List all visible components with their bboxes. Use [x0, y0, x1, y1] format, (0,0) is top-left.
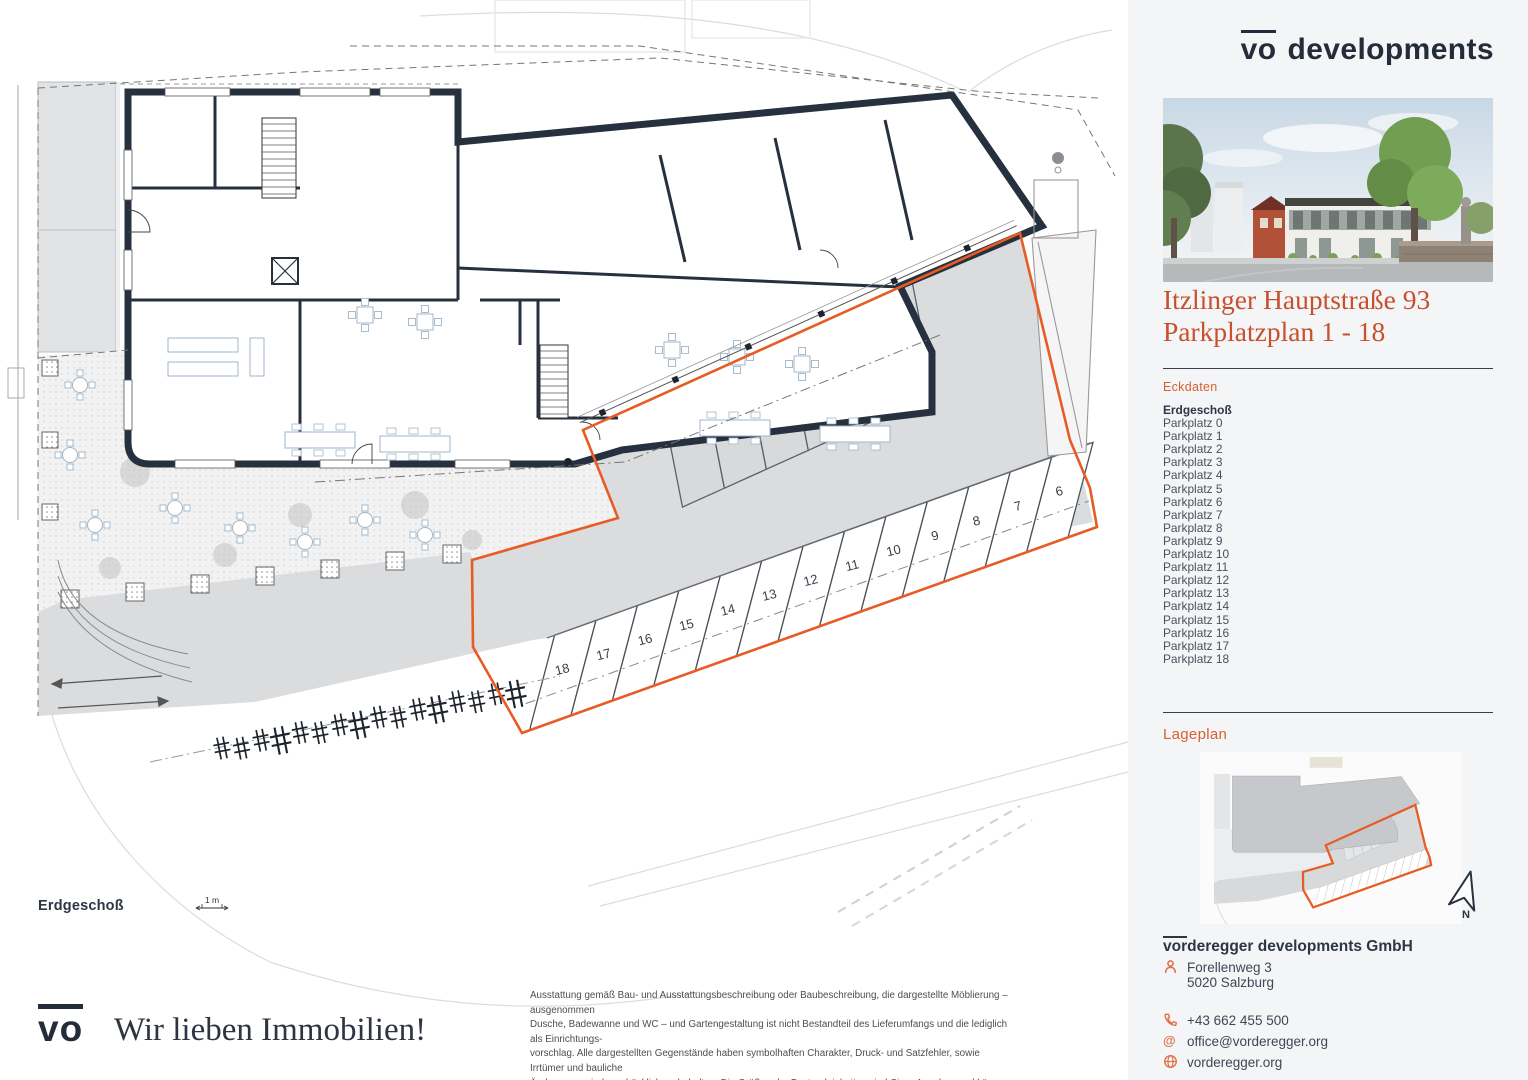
plan-scale-label: 1 m [205, 895, 219, 905]
parking-list-item: Parkplatz 8 [1163, 522, 1232, 535]
eckdaten-heading: Eckdaten [1163, 380, 1218, 394]
brand-tagline: Wir lieben Immobilien! [114, 1012, 426, 1049]
lageplan-heading: Lageplan [1163, 726, 1227, 743]
lageplan-minimap [1200, 752, 1462, 924]
parking-list-item: Parkplatz 17 [1163, 640, 1232, 653]
divider [1163, 368, 1493, 369]
project-photo [1163, 98, 1493, 282]
footer-vo-logo: vo [38, 1004, 83, 1049]
page: 0123451817161514131211109876 Erdgeschoß … [0, 0, 1528, 1080]
parking-list-item: Parkplatz 15 [1163, 614, 1232, 627]
company-name: vorderegger developments GmbH [1163, 936, 1413, 956]
divider [1163, 712, 1493, 713]
vo-developments-logo: vo developments [1241, 30, 1494, 67]
plan-scale-bar: 1 m [190, 894, 234, 914]
globe-icon [1163, 1054, 1178, 1069]
project-photo-image [1163, 98, 1493, 282]
parking-list-item: Parkplatz 6 [1163, 496, 1232, 509]
north-label: N [1462, 909, 1470, 920]
address-row: Forellenweg 3 5020 Salzburg [1163, 960, 1274, 990]
parking-list-item: Parkplatz 4 [1163, 469, 1232, 482]
parking-list-items: Parkplatz 0Parkplatz 1Parkplatz 2Parkpla… [1163, 417, 1232, 666]
website-row: vorderegger.org [1163, 1055, 1282, 1070]
at-icon: @ [1163, 1033, 1178, 1048]
floor-plan: 0123451817161514131211109876 [0, 0, 1128, 1080]
north-arrow-icon: N [1446, 866, 1490, 920]
page-title: Itzlinger Hauptstraße 93 Parkplatzplan 1… [1163, 284, 1430, 348]
parking-list-item: Parkplatz 7 [1163, 509, 1232, 522]
parking-list-item: Parkplatz 14 [1163, 600, 1232, 613]
parking-list-item: Parkplatz 5 [1163, 483, 1232, 496]
plan-floor-label: Erdgeschoß [38, 898, 124, 914]
phone-number: +43 662 455 500 [1187, 1013, 1289, 1028]
phone-icon [1163, 1012, 1178, 1027]
address-line-2: 5020 Salzburg [1187, 975, 1274, 990]
vo-logo-word: developments [1287, 33, 1494, 67]
disclaimer-text: Ausstattung gemäß Bau- und Ausstattungsb… [530, 989, 1012, 1080]
email-row: @ office@vorderegger.org [1163, 1034, 1328, 1049]
vo-logo-mark: vo [1241, 30, 1277, 65]
parking-list-item: Parkplatz 18 [1163, 653, 1232, 666]
vo-logo-mark: vo [38, 1004, 83, 1049]
address-line-1: Forellenweg 3 [1187, 960, 1272, 975]
phone-row: +43 662 455 500 [1163, 1013, 1289, 1028]
location-pin-icon [1163, 959, 1178, 974]
website-url: vorderegger.org [1187, 1055, 1282, 1070]
parking-list-item: Parkplatz 16 [1163, 627, 1232, 640]
sidebar: vo developments [1128, 0, 1528, 1080]
parking-list: Erdgeschoß Parkplatz 0Parkplatz 1Parkpla… [1163, 404, 1232, 666]
title-line-1: Itzlinger Hauptstraße 93 [1163, 284, 1430, 315]
title-line-2: Parkplatzplan 1 - 18 [1163, 316, 1385, 347]
email-address: office@vorderegger.org [1187, 1034, 1328, 1049]
